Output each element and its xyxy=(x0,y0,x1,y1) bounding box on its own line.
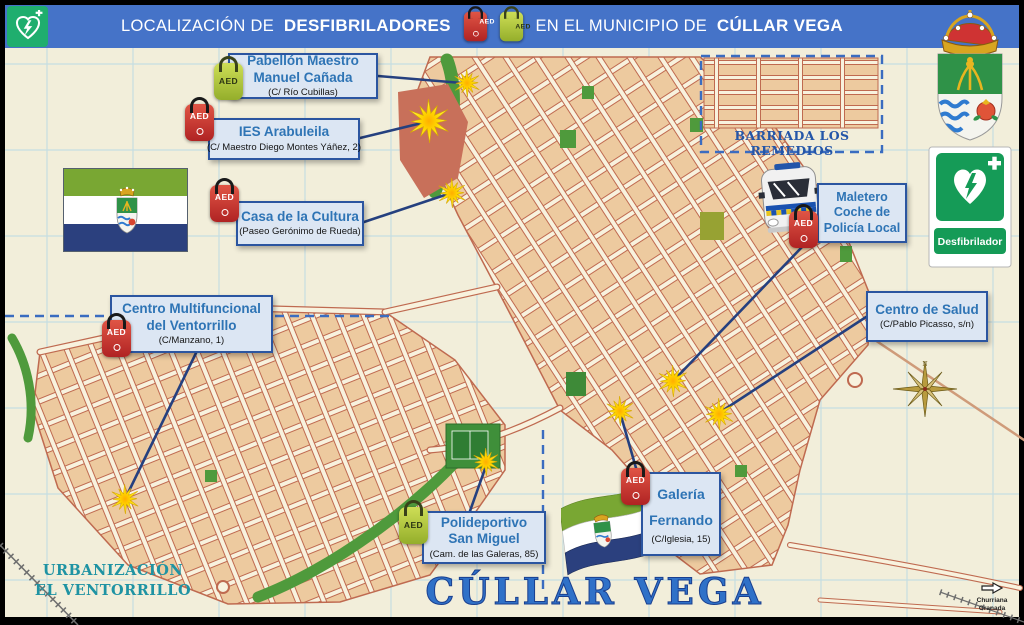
defibrillator-sign: Desfibrilador xyxy=(928,146,1012,268)
location-name: del Ventorrillo xyxy=(146,318,236,334)
direction-line-2: Granada xyxy=(966,605,1018,613)
sports-field xyxy=(446,424,500,468)
aed-handle xyxy=(503,6,518,19)
callout-casa-de-la-cultura: Casa de la Cultura(Paseo Gerónimo de Rue… xyxy=(236,201,364,246)
aed-heart-logo-icon xyxy=(7,6,48,47)
map-poster: LOCALIZACIÓN DE DESFIBRILADORES AED AED … xyxy=(0,0,1024,625)
title-aed-icons: AED AED xyxy=(460,8,527,45)
defib-sign-label: Desfibrilador xyxy=(938,236,1003,248)
aed-device-red-icon: AED xyxy=(464,12,487,42)
aed-label: AED xyxy=(511,22,534,30)
callout-maletero-coche-policia-local: MaleteroCoche dePolicía Local xyxy=(817,183,907,243)
title-text-bold-2: CÚLLAR VEGA xyxy=(717,16,843,35)
title-text-bold-1: DESFIBRILADORES xyxy=(284,16,451,35)
arrow-right-icon xyxy=(981,582,1003,594)
aed-button xyxy=(196,128,203,135)
aed-label: AED xyxy=(399,520,428,530)
aed-button xyxy=(800,235,807,242)
aed-device-red-icon: AED xyxy=(102,320,131,357)
location-address: (C/ Maestro Diego Montes Yáñez, 2) xyxy=(207,142,361,154)
direction-line-1: Churriana xyxy=(966,597,1018,605)
aed-device-red-icon: AED xyxy=(185,104,214,141)
aed-device-red-icon: AED xyxy=(621,468,650,505)
compass-n: N xyxy=(922,361,927,368)
location-address: (Paseo Gerónimo de Rueda) xyxy=(239,226,360,238)
aed-label: AED xyxy=(789,218,818,228)
aed-handle xyxy=(219,56,238,72)
location-name: Centro de Salud xyxy=(875,302,979,318)
aed-label: AED xyxy=(210,192,239,202)
location-name: Polideportivo xyxy=(441,515,527,531)
location-name: Coche de xyxy=(834,205,890,220)
title-text-1: LOCALIZACIÓN DE xyxy=(121,17,274,35)
direction-sign-churriana: Churriana Granada xyxy=(966,582,1018,612)
callout-galeria-fernando: GaleríaFernando(C/Iglesia, 15) xyxy=(641,472,721,556)
location-name: Galería xyxy=(657,486,704,503)
callout-pabellon-maestro-manuel-canada: Pabellón MaestroManuel Cañada(C/ Río Cub… xyxy=(228,53,378,99)
location-address: (C/ Río Cubillas) xyxy=(268,87,338,99)
aed-device-red-icon: AED xyxy=(789,211,818,248)
aed-label: AED xyxy=(102,327,131,337)
aed-button xyxy=(113,344,120,351)
aed-button xyxy=(472,31,478,37)
aed-label: AED xyxy=(621,475,650,485)
poster-title: LOCALIZACIÓN DE DESFIBRILADORES AED AED … xyxy=(5,8,1019,45)
location-name: Fernando xyxy=(649,512,713,529)
town-title: CÚLLAR VEGA xyxy=(420,574,770,610)
aed-label: AED xyxy=(214,76,243,86)
aed-device-green-icon: AED xyxy=(499,12,522,42)
location-name: Casa de la Cultura xyxy=(241,209,359,225)
coat-of-arms xyxy=(928,6,1012,144)
urbanizacion-el-ventorrillo-label: URBANIZACIÓN EL VENTORRILLO xyxy=(34,561,192,600)
aed-button xyxy=(632,492,639,499)
callout-ies-arabuleila: IES Arabuleila(C/ Maestro Diego Montes Y… xyxy=(208,118,360,160)
location-address: (Cam. de las Galeras, 85) xyxy=(430,549,539,561)
aed-label: AED xyxy=(185,111,214,121)
location-name: Pabellón Maestro xyxy=(247,53,359,69)
title-bar: LOCALIZACIÓN DE DESFIBRILADORES AED AED … xyxy=(5,5,1019,48)
barriada-los-remedios-label: BARRIADA LOS REMEDIOS xyxy=(702,128,882,158)
callout-polideportivo-san-miguel: PolideportivoSan Miguel(Cam. de las Gale… xyxy=(422,511,546,564)
aed-handle xyxy=(404,500,423,516)
compass-rose: N xyxy=(890,358,960,420)
callout-centro-multifuncional-del-ventorrillo: Centro Multifuncionaldel Ventorrillo(C/M… xyxy=(110,295,273,353)
aed-label: AED xyxy=(475,17,498,25)
urbanizacion-line-2: EL VENTORRILLO xyxy=(34,581,192,601)
urbanizacion-line-1: URBANIZACIÓN xyxy=(34,561,192,581)
aed-device-green-icon: AED xyxy=(214,63,243,100)
location-address: (C/Manzano, 1) xyxy=(159,335,224,347)
barriada-area xyxy=(704,58,878,128)
location-name: Manuel Cañada xyxy=(253,70,352,86)
location-name: Centro Multifuncional xyxy=(122,301,261,317)
location-name: San Miguel xyxy=(448,531,519,547)
location-name: Policía Local xyxy=(824,221,900,236)
location-address: (C/Pablo Picasso, s/n) xyxy=(880,319,974,331)
aed-device-green-icon: AED xyxy=(399,507,428,544)
flag-coat-of-arms xyxy=(112,185,142,237)
title-text-2: EN EL MUNICIPIO DE xyxy=(535,17,707,35)
aed-button xyxy=(221,209,228,216)
cullar-vega-flag xyxy=(63,168,188,252)
location-address: (C/Iglesia, 15) xyxy=(651,534,710,546)
callout-centro-de-salud: Centro de Salud(C/Pablo Picasso, s/n) xyxy=(866,291,988,342)
aed-device-red-icon: AED xyxy=(210,185,239,222)
location-name: Maletero xyxy=(836,190,887,205)
location-name: IES Arabuleila xyxy=(239,124,329,140)
